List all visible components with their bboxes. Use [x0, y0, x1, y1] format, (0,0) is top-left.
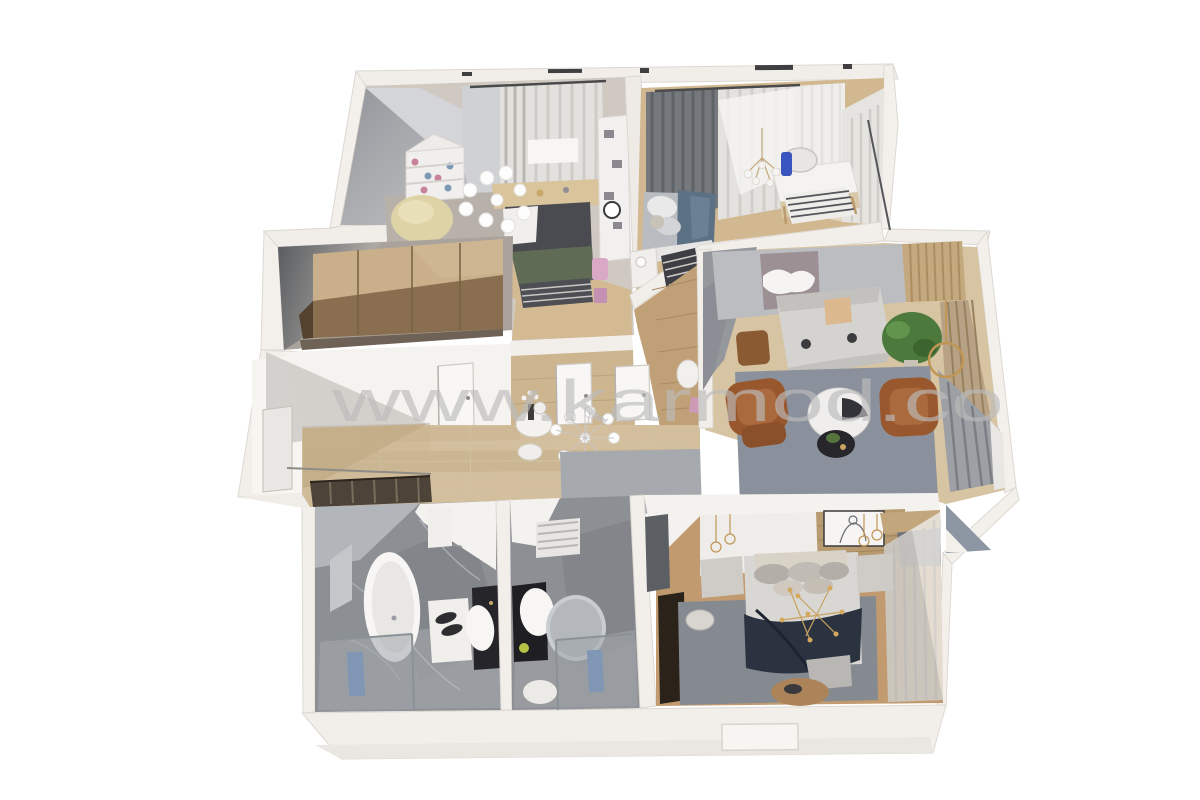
svg-text:www.karmod.co: www.karmod.co	[330, 369, 1004, 434]
